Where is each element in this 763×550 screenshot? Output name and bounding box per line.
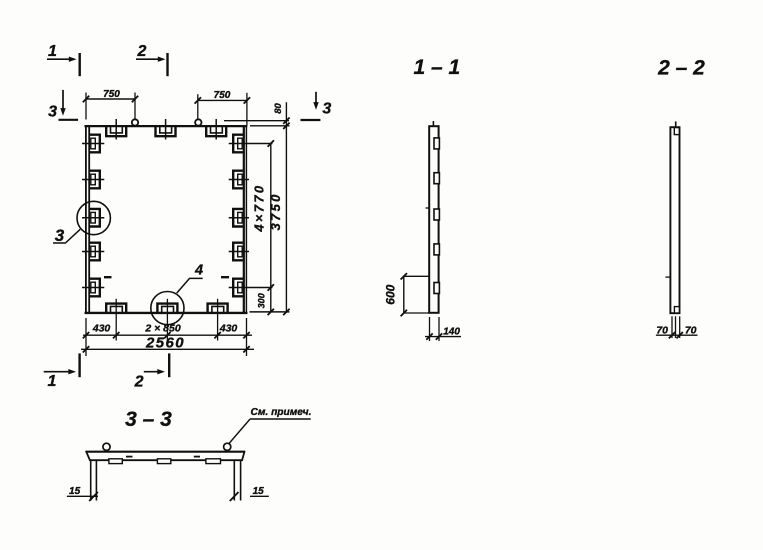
svg-text:70: 70: [656, 324, 668, 336]
svg-text:4: 4: [194, 263, 203, 279]
svg-text:3750: 3750: [268, 192, 283, 230]
svg-text:15: 15: [253, 486, 265, 497]
svg-text:2 – 2: 2 – 2: [657, 57, 705, 80]
svg-text:1: 1: [48, 43, 57, 60]
svg-text:См. примеч.: См. примеч.: [251, 407, 312, 418]
svg-text:3: 3: [322, 101, 331, 118]
svg-text:2 × 850: 2 × 850: [144, 323, 180, 335]
svg-text:3: 3: [48, 104, 57, 121]
svg-text:750: 750: [103, 89, 120, 100]
svg-text:4×770: 4×770: [252, 184, 267, 233]
svg-text:300: 300: [256, 293, 266, 308]
svg-text:3: 3: [55, 226, 65, 245]
svg-text:140: 140: [443, 327, 460, 338]
svg-text:3 – 3: 3 – 3: [125, 408, 172, 431]
svg-text:80: 80: [273, 103, 284, 114]
svg-text:2: 2: [134, 374, 144, 391]
svg-text:2560: 2560: [145, 335, 185, 352]
svg-text:430: 430: [219, 323, 238, 335]
svg-text:15: 15: [69, 486, 81, 497]
svg-text:1 – 1: 1 – 1: [413, 56, 460, 79]
svg-text:2: 2: [137, 43, 147, 60]
svg-text:1: 1: [47, 373, 56, 390]
svg-text:750: 750: [214, 90, 231, 101]
svg-text:600: 600: [384, 284, 398, 304]
svg-text:430: 430: [92, 323, 111, 335]
svg-text:70: 70: [685, 324, 697, 336]
